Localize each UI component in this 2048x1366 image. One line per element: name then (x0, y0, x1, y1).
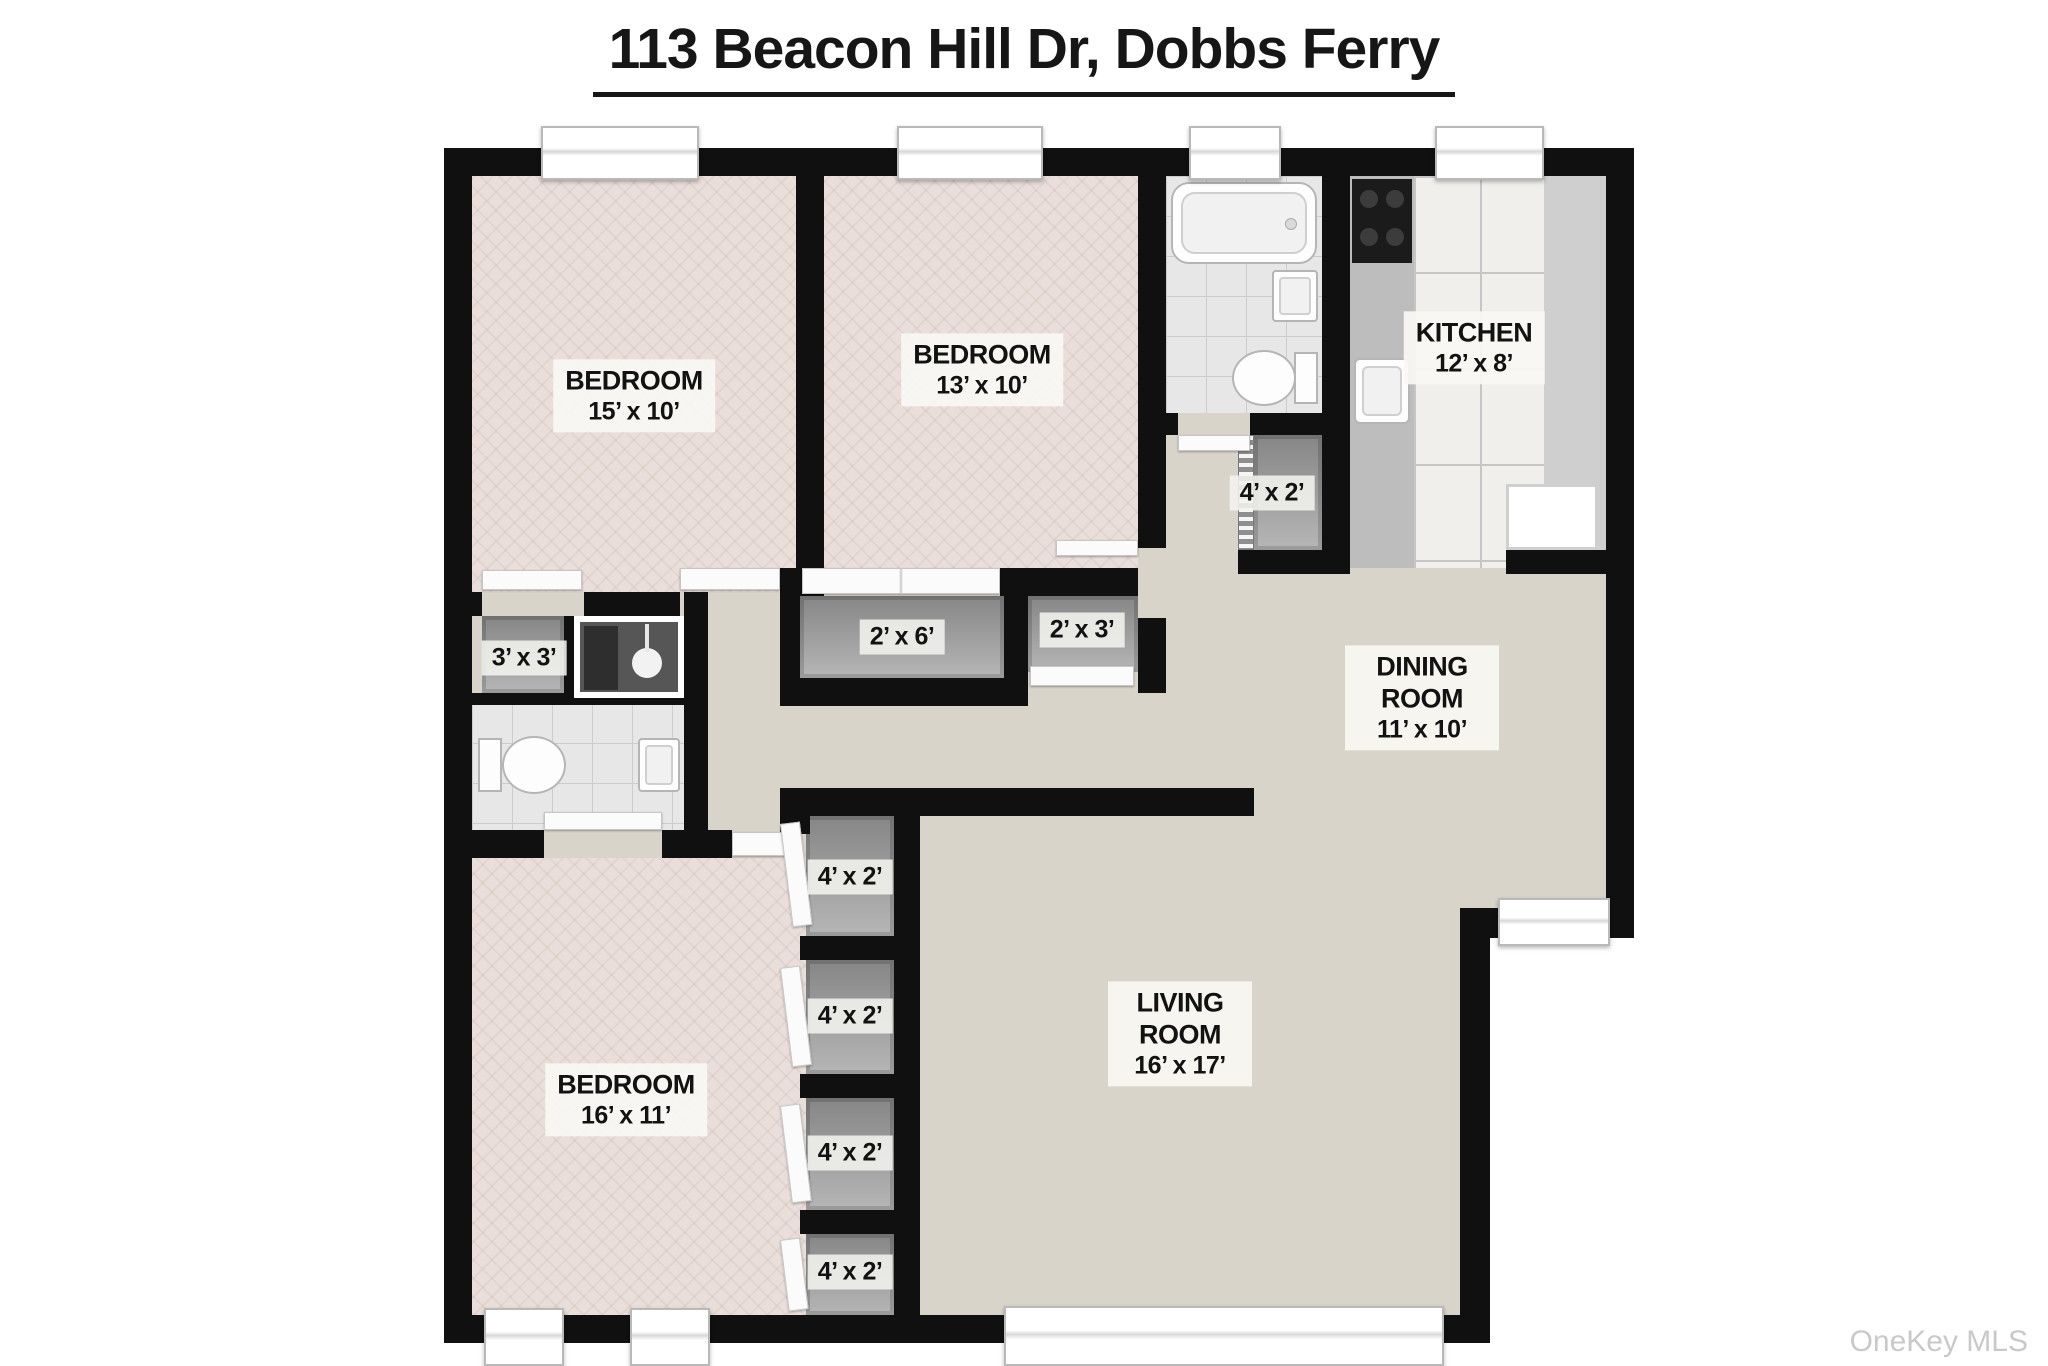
narrow-closet-door (1030, 666, 1134, 686)
bedroom2-door (1056, 540, 1138, 556)
living-room-label: LIVING ROOM 16’ x 17’ (1108, 981, 1252, 1086)
wall (796, 148, 824, 596)
shower-panel (584, 626, 618, 690)
bedroom2-name: BEDROOM (913, 339, 1051, 371)
wall (894, 816, 920, 1315)
dining-room-name: DINING ROOM (1357, 651, 1487, 715)
column-closet-label: 4’ x 2’ (808, 860, 893, 895)
bathroom2-sink (638, 738, 680, 792)
shower-arm-icon (645, 624, 649, 652)
narrow-closet-label: 2’ x 3’ (1040, 613, 1125, 648)
wall (1138, 618, 1166, 693)
wall (684, 592, 708, 830)
shower-stall (574, 616, 684, 698)
small-closet-label: 3’ x 3’ (482, 641, 567, 676)
kitchen-name: KITCHEN (1416, 317, 1533, 349)
bedroom3-dims: 16’ x 11’ (557, 1101, 695, 1131)
wall (790, 788, 1254, 816)
stove-burner-icon (1360, 228, 1378, 246)
stove-burner-icon (1360, 190, 1378, 208)
refrigerator (1506, 484, 1598, 550)
stove-burner-icon (1386, 190, 1404, 208)
wall (1250, 413, 1322, 435)
page: { "title": "113 Beacon Hill Dr, Dobbs Fe… (0, 0, 2048, 1365)
living-room-name: LIVING ROOM (1120, 987, 1240, 1051)
bedroom3-window (484, 1308, 564, 1366)
wall (472, 830, 544, 858)
bedroom1-name: BEDROOM (565, 365, 703, 397)
wall (1506, 550, 1606, 574)
column-closet-label: 4’ x 2’ (808, 1255, 893, 1290)
bathroom1-sink (1272, 270, 1318, 322)
dining-room-label: DINING ROOM 11’ x 10’ (1345, 645, 1499, 750)
bedroom1-label: BEDROOM 15’ x 10’ (553, 359, 715, 432)
bathroom1-door (1178, 435, 1250, 451)
shower-head-icon (632, 648, 662, 678)
bathroom2-door (544, 812, 662, 830)
bedroom2-window (897, 126, 1043, 180)
wall (780, 678, 1028, 706)
bedroom3-label: BEDROOM 16’ x 11’ (545, 1063, 707, 1136)
bathroom2-toilet-tank (478, 738, 502, 792)
stove-burner-icon (1386, 228, 1404, 246)
wall (1166, 413, 1178, 435)
kitchen-label: KITCHEN 12’ x 8’ (1404, 311, 1545, 384)
wall (584, 592, 680, 616)
bathtub-drain-icon (1285, 218, 1297, 230)
bathroom1-sink-basin (1279, 277, 1311, 315)
bedroom1-door (680, 568, 780, 590)
watermark: OneKey MLS (1850, 1325, 2028, 1359)
title-bar: 113 Beacon Hill Dr, Dobbs Ferry (0, 16, 2048, 97)
bathtub (1171, 182, 1317, 264)
wall (472, 592, 482, 616)
wall (800, 1210, 894, 1234)
living-room-dims: 16’ x 17’ (1120, 1051, 1240, 1081)
kitchen-window (1435, 126, 1544, 180)
bedroom1-window (541, 126, 699, 180)
bedroom1-dims: 15’ x 10’ (565, 397, 703, 427)
small-closet-door (482, 570, 582, 590)
bedroom2-dims: 13’ x 10’ (913, 371, 1051, 401)
kitchen-sink (1354, 358, 1410, 424)
wall (444, 148, 472, 1343)
dining-room-dims: 11’ x 10’ (1357, 715, 1487, 745)
wall (800, 1074, 894, 1098)
bathroom1-window (1189, 126, 1281, 180)
page-title: 113 Beacon Hill Dr, Dobbs Ferry (593, 16, 1456, 97)
stove-icon (1352, 179, 1412, 263)
wall (1322, 148, 1350, 574)
bathroom1-toilet-tank (1294, 352, 1318, 404)
dining-room-window (1498, 898, 1610, 946)
wall (1606, 148, 1634, 938)
wall (1138, 148, 1166, 548)
wall (1004, 568, 1028, 693)
bedroom3-name: BEDROOM (557, 1069, 695, 1101)
wall (800, 936, 894, 960)
hall-closet-label: 4’ x 2’ (1230, 476, 1315, 511)
bathroom2-toilet-bowl (502, 736, 566, 794)
column-closet-label: 4’ x 2’ (808, 1136, 893, 1171)
bedroom3-window (630, 1308, 710, 1366)
floor-plan: BEDROOM 15’ x 10’ BEDROOM 13’ x 10’ KITC… (444, 148, 1634, 1343)
wide-closet-sliding-door (802, 568, 1000, 594)
wall (1460, 908, 1490, 1343)
bathroom1-toilet-bowl (1232, 350, 1296, 406)
wall (1238, 550, 1322, 574)
column-closet-label: 4’ x 2’ (808, 999, 893, 1034)
bathroom2-sink-basin (645, 745, 673, 785)
kitchen-dims: 12’ x 8’ (1416, 349, 1533, 379)
bedroom2-label: BEDROOM 13’ x 10’ (901, 333, 1063, 406)
wide-closet-label: 2’ x 6’ (860, 620, 945, 655)
living-room-window (1004, 1306, 1444, 1366)
wall (662, 830, 732, 858)
kitchen-sink-basin (1362, 366, 1402, 416)
exterior-area (1490, 938, 1634, 1343)
